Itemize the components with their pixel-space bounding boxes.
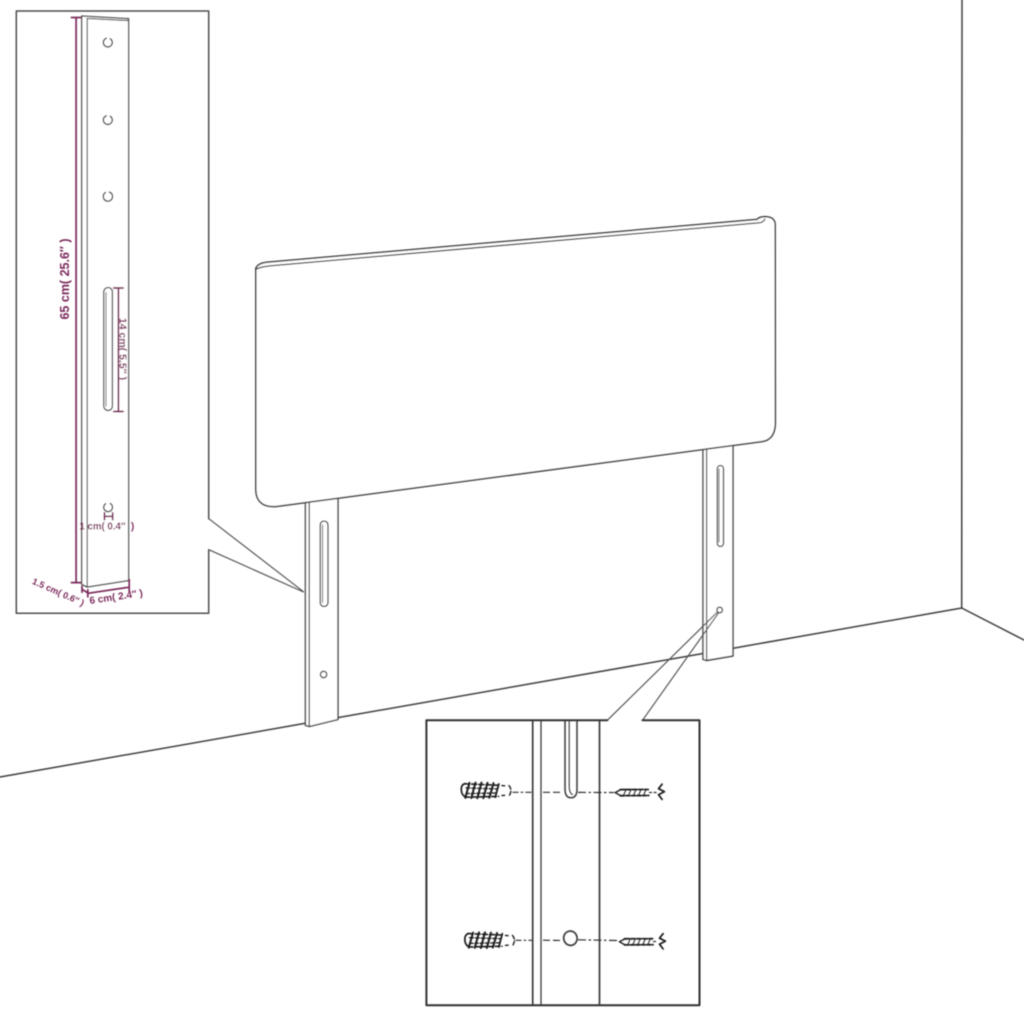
svg-text:1 cm( 0.4″: 1 cm( 0.4″: [79, 521, 125, 532]
svg-text:14 cm( 5.5″ ): 14 cm( 5.5″ ): [117, 318, 129, 380]
svg-text:): ): [131, 521, 134, 532]
svg-text:65 cm( 25.6″ ): 65 cm( 25.6″ ): [58, 238, 72, 319]
